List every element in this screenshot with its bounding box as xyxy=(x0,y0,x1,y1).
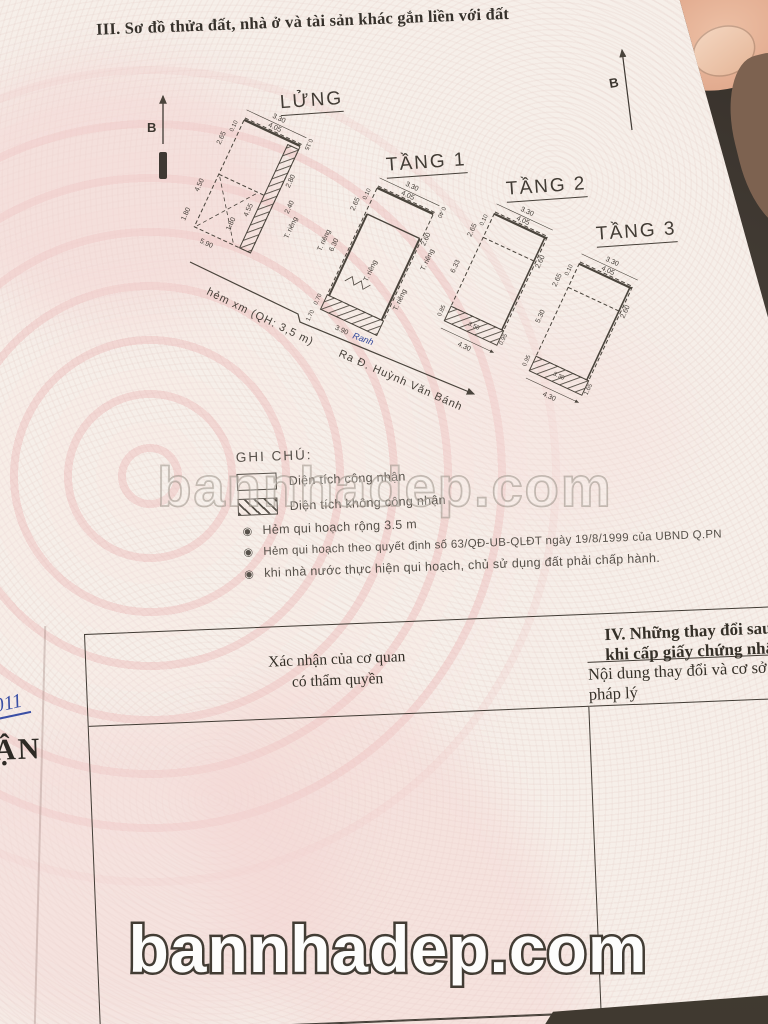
dim-label: 0.10 xyxy=(362,187,373,201)
dim-label: 5.30 xyxy=(535,309,547,324)
north-arrow-right: B xyxy=(608,50,632,130)
dim-label: 1.70 xyxy=(306,309,317,323)
dim-label: 0.10 xyxy=(479,213,490,227)
dim-label: 2.40 xyxy=(284,200,296,215)
dim-label: 6.33 xyxy=(450,259,462,274)
legend-label: Hẻm qui hoạch rộng 3.5 m xyxy=(262,517,417,537)
dim-label: 2.60 xyxy=(420,232,432,247)
floor-plan-lung: 3.30 4.05 0.15 0.10 2.65 4.50 1.80 5.90 … xyxy=(174,96,336,278)
north-arrow-left: B xyxy=(147,96,167,179)
photo-of-land-certificate: III. Sơ đồ thửa đất, nhà ở và tài sản kh… xyxy=(0,0,768,1024)
bullet-icon: ◉ xyxy=(243,545,253,558)
section4-title-cell: IV. Những thay đổi sau khi cấp giấy chứn… xyxy=(586,607,768,663)
dim-label: 0.10 xyxy=(229,119,240,133)
section4-left-header-cell: Nội dung thay đổi và cơ sở pháp lý xyxy=(588,655,768,707)
compass-bar xyxy=(159,152,167,179)
dim-label: 2.65 xyxy=(350,197,362,212)
dim-label: 0.40 xyxy=(435,205,446,219)
dim-label: T. riêng xyxy=(283,216,299,240)
dim-label: 2.65 xyxy=(467,223,479,238)
dim-label: 2.65 xyxy=(216,130,228,145)
dim-label: 0.15 xyxy=(302,137,313,151)
recognized-area-swatch xyxy=(236,472,277,491)
dim-label: 3.90 xyxy=(334,325,349,337)
dim-label: 0.95 xyxy=(522,354,533,368)
dim-label: 4.50 xyxy=(194,177,206,192)
col-left-label: Nội dung thay đổi và cơ sở pháp lý xyxy=(588,656,768,704)
dim-label: 6.30 xyxy=(328,237,340,252)
compass-label: B xyxy=(147,120,156,135)
dim-label: 4.55 xyxy=(243,203,255,218)
street-exit-label: Ra Đ. Huỳnh Văn Bánh xyxy=(337,348,465,414)
dim-label: 0.70 xyxy=(313,292,324,306)
dim-label: T. riêng xyxy=(420,248,436,272)
floor-plan-tang3: 3.30 4.05 0.10 2.65 5.30 2.60 3.30 4.30 … xyxy=(507,240,647,416)
col-right-line2: có thẩm quyền xyxy=(292,669,384,693)
dim-label: 4.30 xyxy=(456,341,471,353)
col-right-line1: Xác nhận của cơ quan xyxy=(268,647,406,673)
compass-label: B xyxy=(608,75,620,91)
section4-body-right xyxy=(589,699,768,1013)
dim-label: 4.30 xyxy=(541,391,556,403)
bullet-icon: ◉ xyxy=(244,567,254,580)
dim-label: 5.90 xyxy=(199,238,214,250)
legend-label: Diện tích công nhận xyxy=(288,469,405,487)
dim-label: 0.85 xyxy=(437,304,448,318)
not-recognized-area-swatch xyxy=(237,497,278,516)
dim-label: 1.80 xyxy=(225,216,237,231)
dim-label: 1.80 xyxy=(180,206,192,221)
legend-ghi-chu: GHI CHÚ: Diện tích công nhận Diện tích k… xyxy=(236,430,761,589)
section4-table: IV. Những thay đổi sau khi cấp giấy chứn… xyxy=(84,606,768,1024)
dim-label: 2.65 xyxy=(552,273,564,288)
stamp-text-partial: ẬN xyxy=(0,732,42,768)
dim-label: 0.10 xyxy=(564,263,575,277)
section4-body-left xyxy=(89,707,602,1024)
dim-label: T. riêng xyxy=(363,259,379,283)
bullet-icon: ◉ xyxy=(242,524,252,537)
legend-label: Diện tích không công nhận xyxy=(289,493,446,513)
